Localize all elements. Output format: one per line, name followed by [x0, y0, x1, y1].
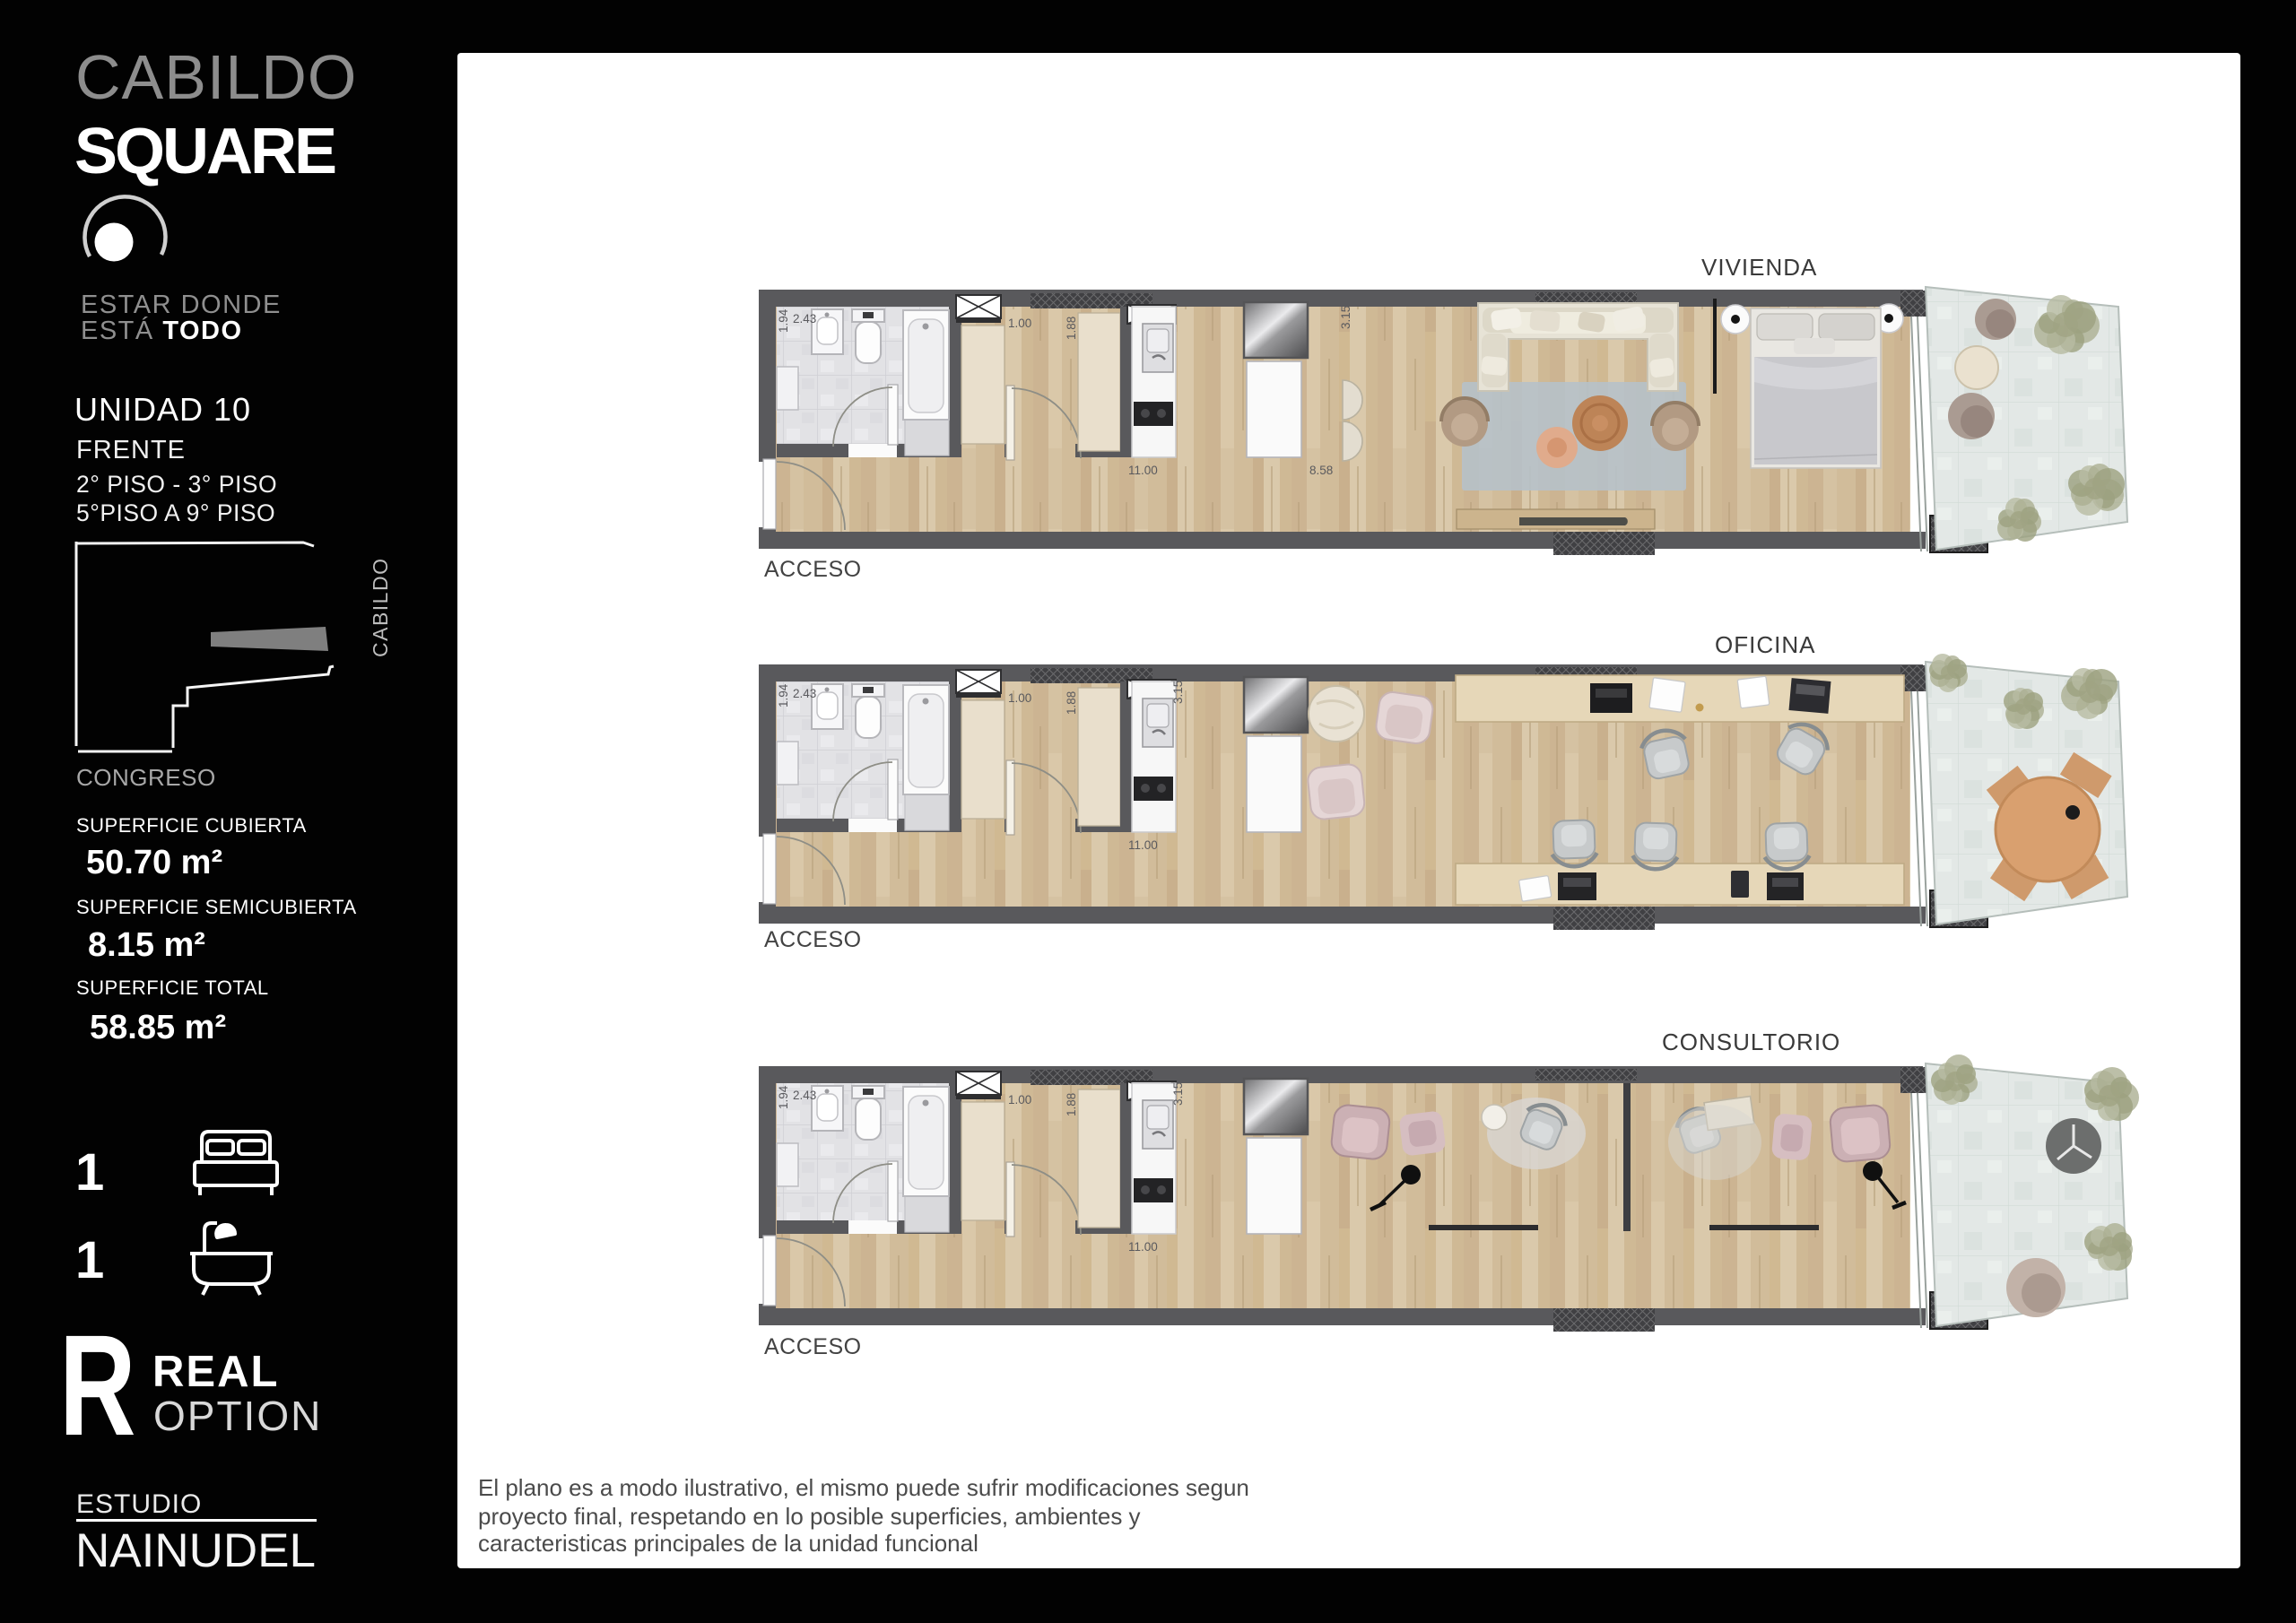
svg-text:1: 1: [75, 1143, 104, 1202]
svg-text:SUPERFICIE CUBIERTA: SUPERFICIE CUBIERTA: [76, 814, 307, 837]
svg-text:caracteristicas principales de: caracteristicas principales de la unidad…: [478, 1530, 978, 1557]
svg-text:OFICINA: OFICINA: [1715, 631, 1815, 658]
svg-text:8.15 m²: 8.15 m²: [88, 926, 205, 964]
svg-text:ESTAR DONDE: ESTAR DONDE: [81, 291, 282, 319]
svg-text:2° PISO - 3° PISO: 2° PISO - 3° PISO: [76, 471, 277, 498]
svg-text:ESTÁ TODO: ESTÁ TODO: [81, 316, 243, 345]
svg-text:FRENTE: FRENTE: [76, 436, 186, 464]
svg-text:CABILDO: CABILDO: [369, 558, 392, 657]
svg-text:3.15: 3.15: [1339, 306, 1352, 329]
svg-text:CABILDO: CABILDO: [75, 42, 357, 112]
svg-text:proyecto final, respetando en: proyecto final, respetando en lo posible…: [478, 1503, 1141, 1530]
svg-text:8.58: 8.58: [1309, 464, 1333, 477]
svg-text:ACCESO: ACCESO: [764, 557, 862, 582]
svg-text:OPTION: OPTION: [153, 1393, 322, 1439]
svg-text:SUPERFICIE TOTAL: SUPERFICIE TOTAL: [76, 976, 269, 999]
svg-text:ESTUDIO: ESTUDIO: [76, 1489, 202, 1519]
svg-text:2.43: 2.43: [793, 312, 816, 325]
svg-text:1: 1: [75, 1231, 104, 1289]
svg-text:2.43: 2.43: [793, 687, 816, 700]
svg-text:El plano es a modo ilustrativo: El plano es a modo ilustrativo, el mismo…: [478, 1474, 1249, 1501]
svg-text:REAL: REAL: [152, 1348, 279, 1396]
svg-text:1.00: 1.00: [1008, 1093, 1031, 1107]
svg-text:5°PISO A 9° PISO: 5°PISO A 9° PISO: [76, 499, 275, 526]
svg-text:UNIDAD 10: UNIDAD 10: [74, 391, 251, 428]
svg-text:11.00: 11.00: [1128, 1240, 1158, 1254]
svg-text:1.88: 1.88: [1065, 317, 1078, 340]
svg-text:58.85 m²: 58.85 m²: [90, 1009, 226, 1046]
svg-text:1.94: 1.94: [777, 1085, 790, 1109]
svg-text:VIVIENDA: VIVIENDA: [1701, 254, 1817, 281]
svg-text:11.00: 11.00: [1128, 464, 1158, 477]
svg-text:11.00: 11.00: [1128, 838, 1158, 852]
svg-text:3.15: 3.15: [1171, 1082, 1185, 1106]
svg-text:1.94: 1.94: [777, 683, 790, 707]
svg-text:NAINUDEL: NAINUDEL: [75, 1524, 316, 1577]
svg-text:R: R: [59, 1306, 136, 1465]
svg-text:ACCESO: ACCESO: [764, 927, 862, 952]
svg-text:50.70 m²: 50.70 m²: [86, 844, 222, 881]
svg-text:SQUARE: SQUARE: [74, 116, 335, 187]
svg-text:1.00: 1.00: [1008, 317, 1031, 330]
svg-text:CONGRESO: CONGRESO: [76, 764, 216, 791]
svg-text:1.00: 1.00: [1008, 691, 1031, 705]
svg-text:1.88: 1.88: [1065, 1093, 1078, 1116]
svg-text:1.94: 1.94: [777, 308, 790, 333]
svg-text:1.88: 1.88: [1065, 691, 1078, 715]
svg-text:ACCESO: ACCESO: [764, 1334, 862, 1359]
svg-text:3.15: 3.15: [1171, 681, 1185, 704]
svg-text:2.43: 2.43: [793, 1089, 816, 1102]
svg-text:CONSULTORIO: CONSULTORIO: [1662, 1028, 1840, 1055]
svg-text:SUPERFICIE SEMICUBIERTA: SUPERFICIE SEMICUBIERTA: [76, 896, 357, 918]
